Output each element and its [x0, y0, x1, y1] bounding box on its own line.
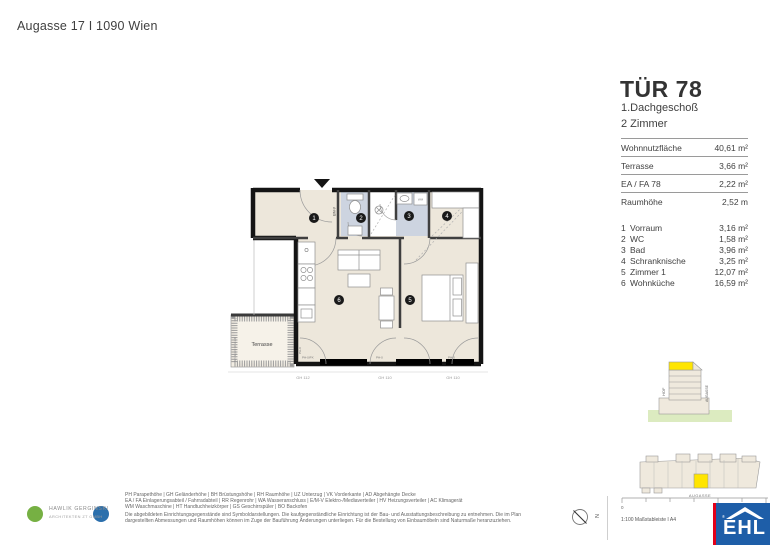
room-area: 3,16 m² — [719, 223, 748, 233]
hof-label: HOF — [661, 387, 666, 396]
room-name: Vorraum — [630, 223, 719, 233]
table-row: Wohnnutzfläche40,61 m² — [621, 138, 748, 156]
building-section-diagram: HOF AUGASSE — [645, 358, 735, 428]
list-item: 3Bad3,96 m² — [621, 244, 748, 255]
window-label: PH-0 — [448, 356, 455, 360]
table-row: Raumhöhe2,52 m — [621, 192, 748, 210]
north-label: N — [593, 514, 599, 518]
pillow — [453, 299, 462, 316]
room-no: 2 — [621, 234, 630, 244]
terrace: Terrasse Schrägschnitt H 230 — [231, 315, 296, 367]
room-list: 1Vorraum3,16 m² 2WC1,58 m² 3Bad3,96 m² 4… — [621, 222, 748, 288]
disclaimer-line: dargestellten Abmessungen und Raumhöhen … — [125, 518, 555, 524]
wardrobe — [466, 263, 478, 323]
row-label: Terrasse — [621, 161, 654, 171]
chair — [381, 288, 393, 295]
dimension-label: GH 112 — [296, 375, 310, 380]
room-name: Schranknische — [630, 256, 719, 266]
list-item: 5Zimmer 112,07 m² — [621, 266, 748, 277]
room-name: Zimmer 1 — [630, 267, 714, 277]
room-no: 6 — [621, 278, 630, 288]
room-no: 4 — [621, 256, 630, 266]
scale-text: 1:100 Maßstableiste I A4 — [621, 517, 676, 523]
pillow — [453, 278, 462, 295]
terrace-side-label: Schrägschnitt H 230 — [233, 336, 237, 362]
room-no: 5 — [621, 267, 630, 277]
window-side-label: PH-0 — [298, 347, 302, 354]
architect-subtitle: ARCHITEKTEN ZT GMBH — [49, 514, 103, 519]
highlighted-floor — [669, 362, 693, 370]
sink-drain — [305, 248, 308, 251]
room-no: 3 — [621, 245, 630, 255]
row-value: 3,66 m² — [719, 161, 748, 171]
room-area: 1,58 m² — [719, 234, 748, 244]
toilet-cistern — [347, 194, 363, 200]
floor-plan: Terrasse Schrägschnitt H 230 — [228, 168, 488, 398]
legend-block: PH Parapethöhe | GH Geländerhöhe | BH Br… — [125, 492, 555, 524]
room-area: 3,96 m² — [719, 245, 748, 255]
window-label: PH-0 — [376, 356, 383, 360]
room-area: 3,25 m² — [719, 256, 748, 266]
list-item: 1Vorraum3,16 m² — [621, 222, 748, 233]
row-value: 40,61 m² — [714, 143, 748, 153]
chair — [381, 321, 393, 328]
room-area: 16,59 m² — [714, 278, 748, 288]
list-item: 2WC1,58 m² — [621, 233, 748, 244]
room-name: Wohnküche — [630, 278, 714, 288]
unit-floor: 1.Dachgeschoß — [621, 102, 698, 114]
terrace-label: Terrasse — [251, 342, 272, 348]
unit-room-count: 2 Zimmer — [621, 118, 667, 130]
area-summary-table: Wohnnutzfläche40,61 m² Terrasse3,66 m² E… — [621, 138, 748, 210]
dimension-label: GH 110 — [378, 375, 392, 380]
unit-title: TÜR 78 — [620, 76, 702, 103]
wc-sink — [348, 226, 362, 235]
row-value: 2,52 m — [722, 197, 748, 207]
project-address: Augasse 17 I 1090 Wien — [17, 19, 158, 33]
room-name: Bad — [630, 245, 719, 255]
closet-top — [432, 192, 479, 208]
kitchen-counter — [298, 288, 315, 305]
washing-machine-label: WM — [418, 198, 424, 202]
kitchen-sink-unit — [298, 242, 315, 264]
dining-table — [379, 296, 394, 320]
kitchen-hob — [298, 264, 315, 288]
architect-name: HAWLIK GERGINSKI — [49, 506, 109, 512]
room-no: 1 — [621, 223, 630, 233]
row-label: EA / FA 78 — [621, 179, 661, 189]
row-label: Raumhöhe — [621, 197, 663, 207]
augasse-label: AUGASSE — [705, 384, 709, 402]
list-item: 6Wohnküche16,59 m² — [621, 277, 748, 288]
ehl-logo-text: EHL — [723, 519, 766, 537]
room-area: 12,07 m² — [714, 267, 748, 277]
legend-line: WM Waschmaschine | HT Handtuchheizkörper… — [125, 504, 555, 510]
ehl-logo: ® EHL — [713, 503, 770, 545]
table-row: EA / FA 782,22 m² — [621, 174, 748, 192]
entrance-arrow-icon — [314, 179, 330, 188]
table-row: Terrasse3,66 m² — [621, 156, 748, 174]
row-value: 2,22 m² — [719, 179, 748, 189]
list-item: 4Schranknische3,25 m² — [621, 255, 748, 266]
scale-zero: 0 — [621, 505, 624, 510]
window-label: PH-0/PX — [302, 356, 314, 360]
highlighted-unit — [694, 474, 708, 488]
dimension-label: GH 110 — [446, 375, 460, 380]
north-arrow-icon: N — [568, 504, 600, 532]
toilet — [350, 201, 361, 214]
row-label: Wohnnutzfläche — [621, 143, 682, 153]
footer-divider — [607, 496, 608, 540]
emv-label: E/M-V — [333, 206, 337, 216]
coffee-table — [348, 274, 370, 287]
architect-logo-green — [27, 506, 43, 522]
closet-side — [463, 208, 479, 238]
dimension-labels: GH 112 GH 110 GH 110 — [296, 375, 460, 380]
room-name: WC — [630, 234, 719, 244]
